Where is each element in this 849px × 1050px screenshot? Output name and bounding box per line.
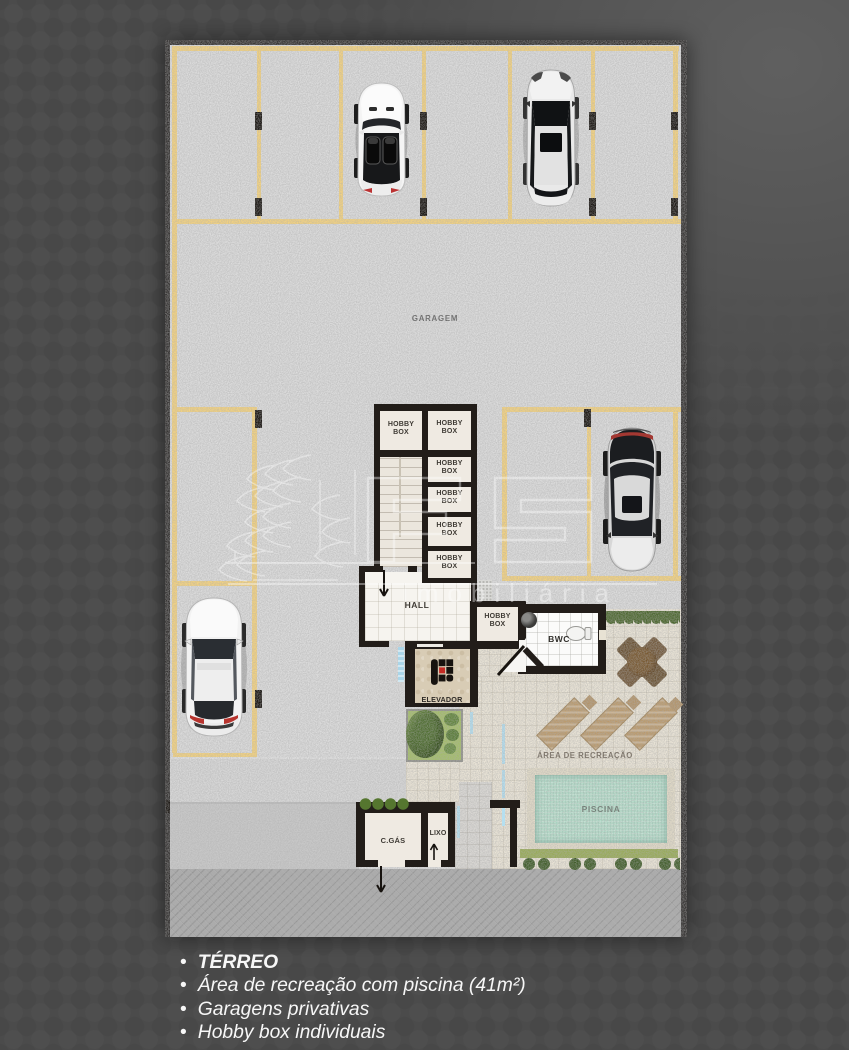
svg-text:imobiliária: imobiliária bbox=[402, 578, 618, 608]
